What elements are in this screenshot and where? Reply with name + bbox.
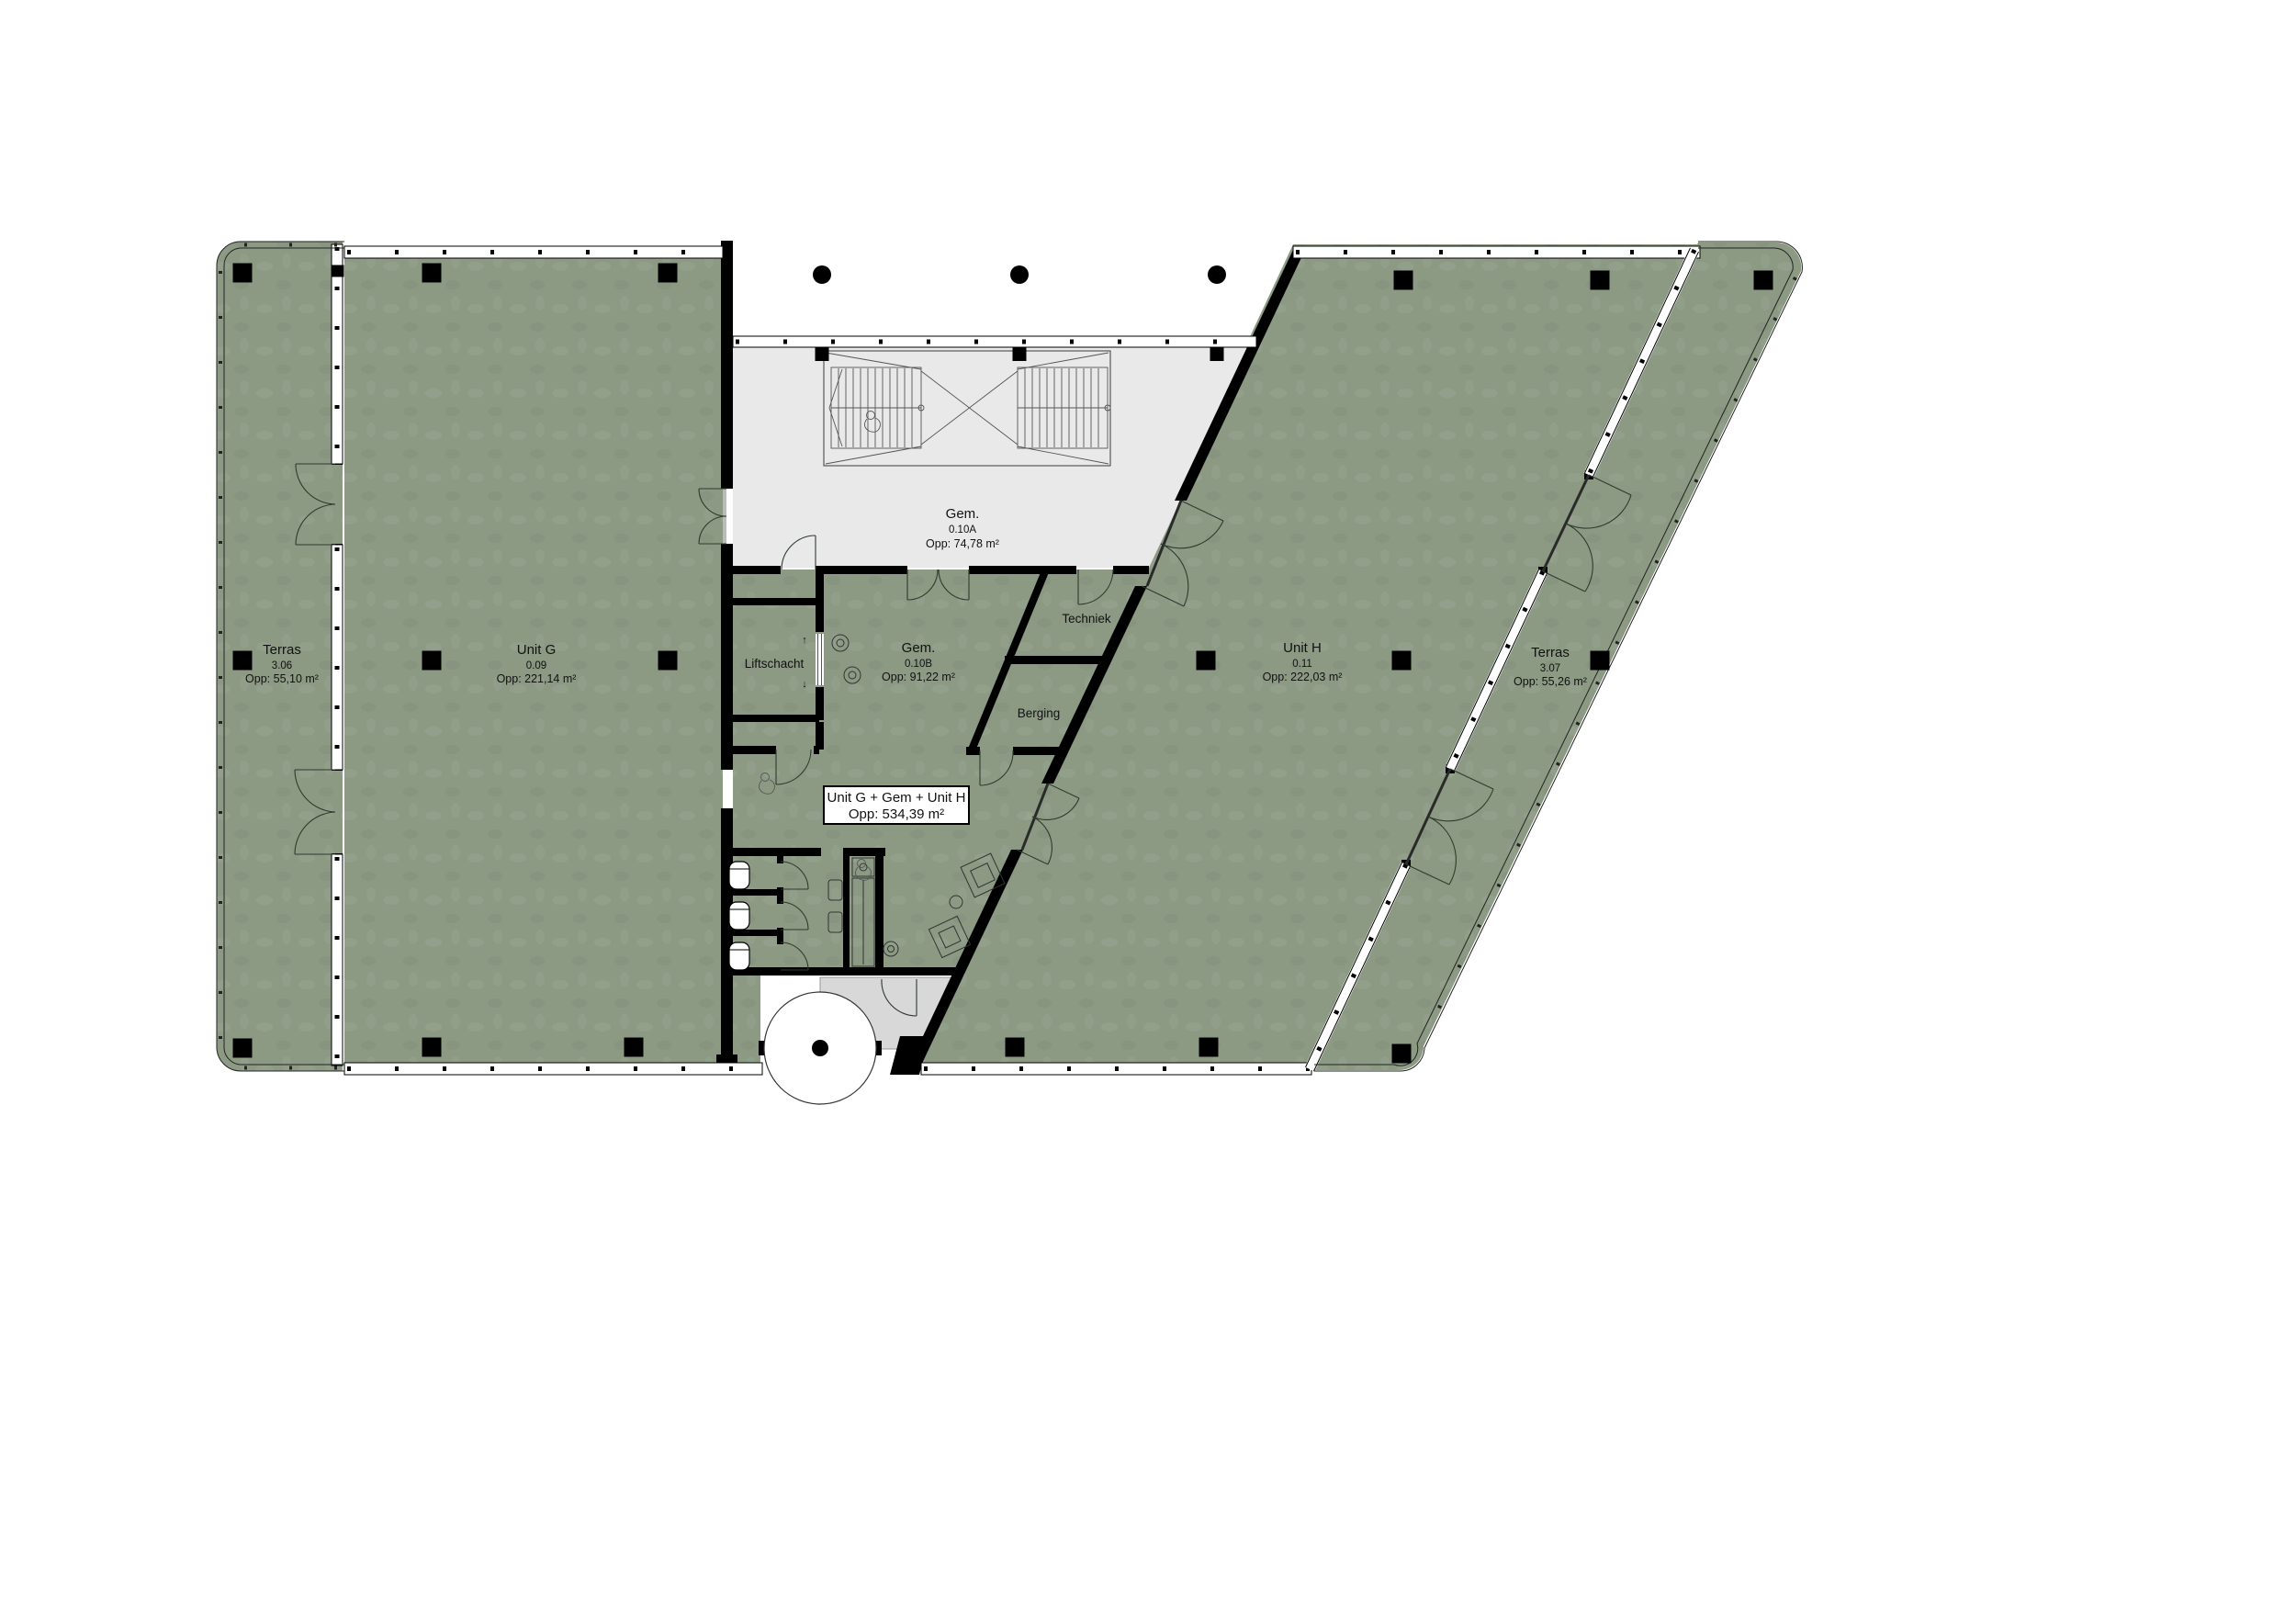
svg-text:Gem.: Gem.	[902, 640, 936, 656]
svg-text:0.09: 0.09	[526, 660, 546, 671]
floor-plan-page: ↑ ↓	[0, 0, 2296, 1624]
svg-text:0.10A: 0.10A	[949, 524, 976, 536]
label-techniek: Techniek	[1062, 612, 1111, 626]
svg-text:Terras: Terras	[263, 642, 301, 658]
svg-text:Opp: 55,26 m²: Opp: 55,26 m²	[1514, 675, 1587, 688]
wc-bowls	[729, 862, 749, 970]
svg-text:Opp: 222,03 m²: Opp: 222,03 m²	[1263, 671, 1343, 683]
floor-plan-canvas: ↑ ↓	[0, 0, 2296, 1624]
label-liftschacht: Liftschacht	[745, 657, 805, 671]
svg-text:Berging: Berging	[1018, 706, 1061, 720]
svg-text:Techniek: Techniek	[1062, 612, 1111, 626]
label-berging: Berging	[1018, 706, 1061, 720]
svg-text:0.10B: 0.10B	[905, 659, 932, 670]
svg-text:Terras: Terras	[1531, 645, 1570, 660]
facade-gem-top	[733, 336, 1256, 347]
svg-text:Unit G: Unit G	[517, 642, 557, 658]
lift-arrow-up: ↑	[802, 635, 807, 646]
svg-text:Opp: 74,78 m²: Opp: 74,78 m²	[926, 537, 999, 550]
summary-line1: Unit G + Gem + Unit H	[827, 790, 966, 806]
svg-text:0.11: 0.11	[1292, 659, 1312, 670]
facade-unit-h-top	[1293, 246, 1700, 258]
summary-line2: Opp: 534,39 m²	[849, 806, 944, 822]
summary-box: Unit G + Gem + Unit H Opp: 534,39 m²	[824, 786, 969, 824]
facade-unit-g-bottom	[344, 1063, 762, 1075]
glass-wall-terras-306	[332, 244, 343, 1066]
svg-text:3.06: 3.06	[272, 660, 292, 671]
facade-unit-g-top	[344, 246, 723, 258]
svg-text:Opp: 221,14 m²: Opp: 221,14 m²	[497, 672, 577, 685]
svg-text:Gem.: Gem.	[946, 506, 980, 522]
facade-unit-h-bottom	[921, 1063, 1311, 1075]
svg-text:Unit H: Unit H	[1283, 640, 1322, 656]
revolving-door	[764, 992, 876, 1104]
svg-text:Opp: 91,22 m²: Opp: 91,22 m²	[882, 671, 955, 683]
svg-text:Liftschacht: Liftschacht	[745, 657, 805, 671]
svg-text:3.07: 3.07	[1540, 663, 1560, 674]
lift-arrow-down: ↓	[802, 679, 807, 690]
svg-text:Opp: 55,10 m²: Opp: 55,10 m²	[245, 672, 319, 685]
